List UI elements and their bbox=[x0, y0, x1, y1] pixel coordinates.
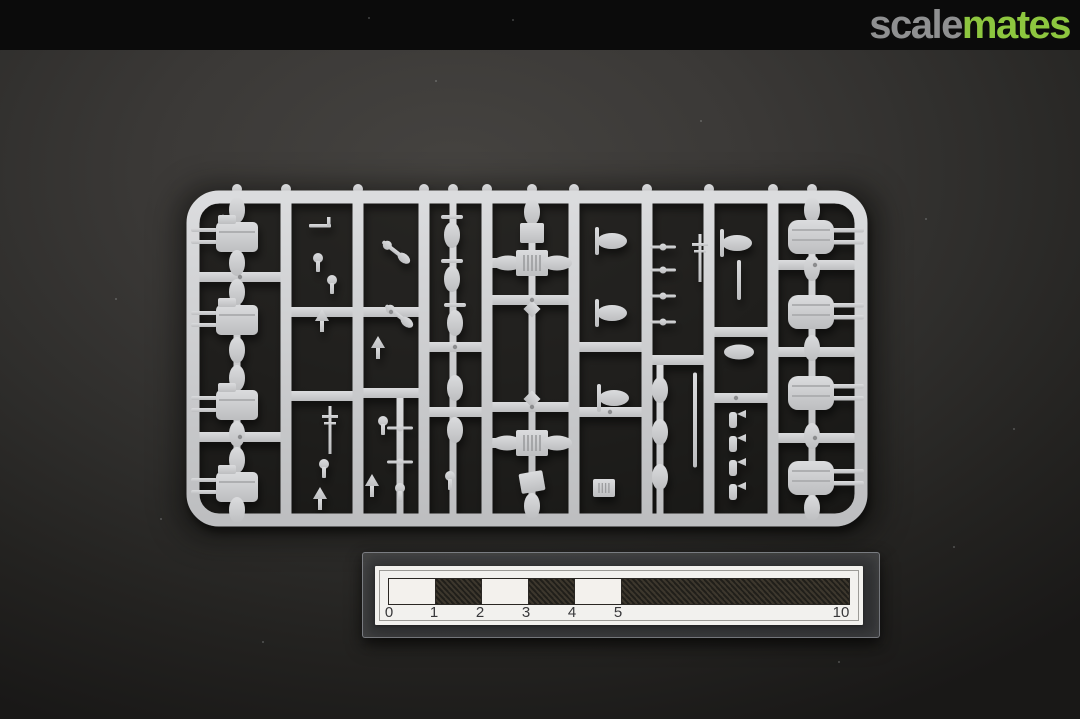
sprue-part-ovalV bbox=[229, 250, 245, 276]
dust-speck bbox=[435, 80, 437, 82]
sprue-crossbar bbox=[709, 327, 773, 337]
sprue-part-turretL bbox=[191, 215, 258, 252]
sprue-runner bbox=[419, 197, 430, 520]
sprue-part-arrow bbox=[313, 487, 327, 510]
dust-speck bbox=[115, 298, 117, 300]
sprue-part-boatH bbox=[542, 436, 572, 451]
sprue-crossbar bbox=[358, 388, 424, 398]
ejector-pin-mark bbox=[813, 436, 817, 440]
sprue-part-ovalV bbox=[229, 421, 245, 447]
sprue-part-yardH bbox=[387, 459, 413, 466]
sprue-part-ovalV bbox=[229, 497, 245, 523]
ejector-pin-mark bbox=[389, 310, 393, 314]
sprue-part-turretR bbox=[788, 295, 864, 329]
sprue-outer-frame bbox=[193, 197, 861, 520]
sprue-part-ovalV bbox=[804, 255, 820, 281]
sprue-part-mountS bbox=[319, 459, 329, 478]
sprue-part-pole bbox=[693, 373, 697, 468]
ejector-pin-mark bbox=[734, 396, 738, 400]
sprue-part-ovalV bbox=[804, 495, 820, 521]
sprue-part-ovalV bbox=[804, 335, 820, 361]
sprue-runner bbox=[768, 197, 779, 520]
dust-speck bbox=[512, 19, 514, 21]
sprue-part-ovalV bbox=[652, 464, 668, 490]
scale-segment-dark bbox=[621, 579, 850, 604]
ruler-tick-label: 1 bbox=[430, 604, 438, 621]
dust-speck bbox=[1013, 428, 1015, 430]
sprue-part-ovalV bbox=[229, 337, 245, 363]
sprue-part-charge bbox=[729, 434, 746, 452]
ruler-tick-label: 10 bbox=[833, 604, 850, 621]
sprue-frame-group bbox=[191, 184, 864, 523]
ejector-pin-mark bbox=[608, 410, 612, 414]
sprue-part-box bbox=[518, 470, 545, 494]
ruler-tick-label: 3 bbox=[522, 604, 530, 621]
sprue-runner bbox=[482, 197, 493, 520]
ruler-tick-label: 0 bbox=[385, 604, 393, 621]
sprue-part-tmount bbox=[720, 229, 752, 257]
sprue-part-tmount bbox=[595, 227, 627, 255]
sprue-part-davit bbox=[309, 217, 331, 228]
sprue-crossbar bbox=[424, 407, 487, 417]
photo-canvas: scalemates 01234510 bbox=[0, 0, 1080, 719]
scale-segment-light bbox=[574, 579, 621, 604]
sprue-crossbar bbox=[286, 391, 358, 401]
dust-speck bbox=[953, 546, 955, 548]
sprue-runner bbox=[642, 197, 653, 520]
sprue-part-mountS bbox=[313, 253, 323, 272]
ejector-pin-mark bbox=[238, 275, 242, 279]
ejector-pin-mark bbox=[530, 405, 534, 409]
ejector-pin-mark bbox=[238, 435, 242, 439]
ruler-tick-label: 4 bbox=[568, 604, 576, 621]
sprue-runner bbox=[353, 197, 364, 520]
sprue-part-ovalV bbox=[652, 377, 668, 403]
sprue-part-ovalV bbox=[447, 417, 463, 443]
ruler-tick-label: 5 bbox=[614, 604, 622, 621]
dust-speck bbox=[700, 120, 702, 122]
sprue-part-diag bbox=[380, 238, 412, 266]
sprue-part-yardH bbox=[650, 244, 676, 251]
sprue-part-box bbox=[520, 223, 544, 243]
dust-speck bbox=[838, 661, 840, 663]
sprue-part-grateS bbox=[593, 479, 615, 497]
sprue-part-yardH bbox=[387, 425, 413, 432]
sprue-part-arrow bbox=[365, 474, 379, 497]
dust-speck bbox=[925, 218, 927, 220]
sprue-part-boatH bbox=[542, 256, 572, 271]
sprue-part-yardH bbox=[650, 267, 676, 274]
dust-speck bbox=[222, 214, 224, 216]
ruler-card: 01234510 bbox=[375, 566, 863, 625]
sprue-part-ovalV bbox=[524, 199, 540, 225]
sprue-part-yardH bbox=[650, 293, 676, 300]
sprue-crossbar bbox=[709, 393, 773, 403]
sprue-part-turretL bbox=[191, 465, 258, 502]
ruler-scale-bar bbox=[388, 578, 850, 605]
ejector-pin-mark bbox=[813, 263, 817, 267]
dust-speck bbox=[368, 17, 370, 19]
sprue-part-mastV bbox=[322, 406, 338, 454]
ruler-sleeve: 01234510 bbox=[362, 552, 880, 638]
ejector-pin-mark bbox=[453, 345, 457, 349]
sprue-part-boatH bbox=[724, 345, 754, 360]
sprue-part-ovalV bbox=[652, 419, 668, 445]
sprue-part-ovalV bbox=[524, 493, 540, 519]
sprue-part-ovalV bbox=[447, 375, 463, 401]
sprue-part-charge bbox=[729, 458, 746, 476]
ejector-pin-mark bbox=[530, 298, 534, 302]
sprue-part-turretR bbox=[788, 376, 864, 410]
sprue-part-mountS bbox=[378, 416, 388, 435]
scale-segment-light bbox=[389, 579, 435, 604]
sprue-part-turretR bbox=[788, 461, 864, 495]
sprue-part-charge bbox=[729, 482, 746, 500]
dust-speck bbox=[160, 518, 162, 520]
sprue-part-yardH bbox=[650, 319, 676, 326]
sprue-runner bbox=[281, 197, 292, 520]
sprue-part-ovalV bbox=[804, 197, 820, 223]
sprue-part-charge bbox=[729, 410, 746, 428]
scale-segment-dark bbox=[435, 579, 482, 604]
sprue-part-turretR bbox=[788, 220, 864, 254]
ruler-tick-label: 2 bbox=[476, 604, 484, 621]
scale-segment-dark bbox=[528, 579, 575, 604]
scale-segment-light bbox=[481, 579, 528, 604]
sprue-part-turretL bbox=[191, 383, 258, 420]
sprue-crossbar bbox=[574, 342, 647, 352]
sprue-runner bbox=[569, 197, 580, 520]
sprue-part-pole bbox=[737, 260, 741, 300]
sprue-part-mountS bbox=[327, 275, 337, 294]
sprue-part-ovalV bbox=[804, 423, 820, 449]
dust-speck bbox=[262, 641, 264, 643]
sprue-part-arrow bbox=[371, 336, 385, 359]
sprue-part-tmount bbox=[595, 299, 627, 327]
sprue-part-turretL bbox=[191, 298, 258, 335]
sprue-crossbar bbox=[647, 355, 709, 365]
